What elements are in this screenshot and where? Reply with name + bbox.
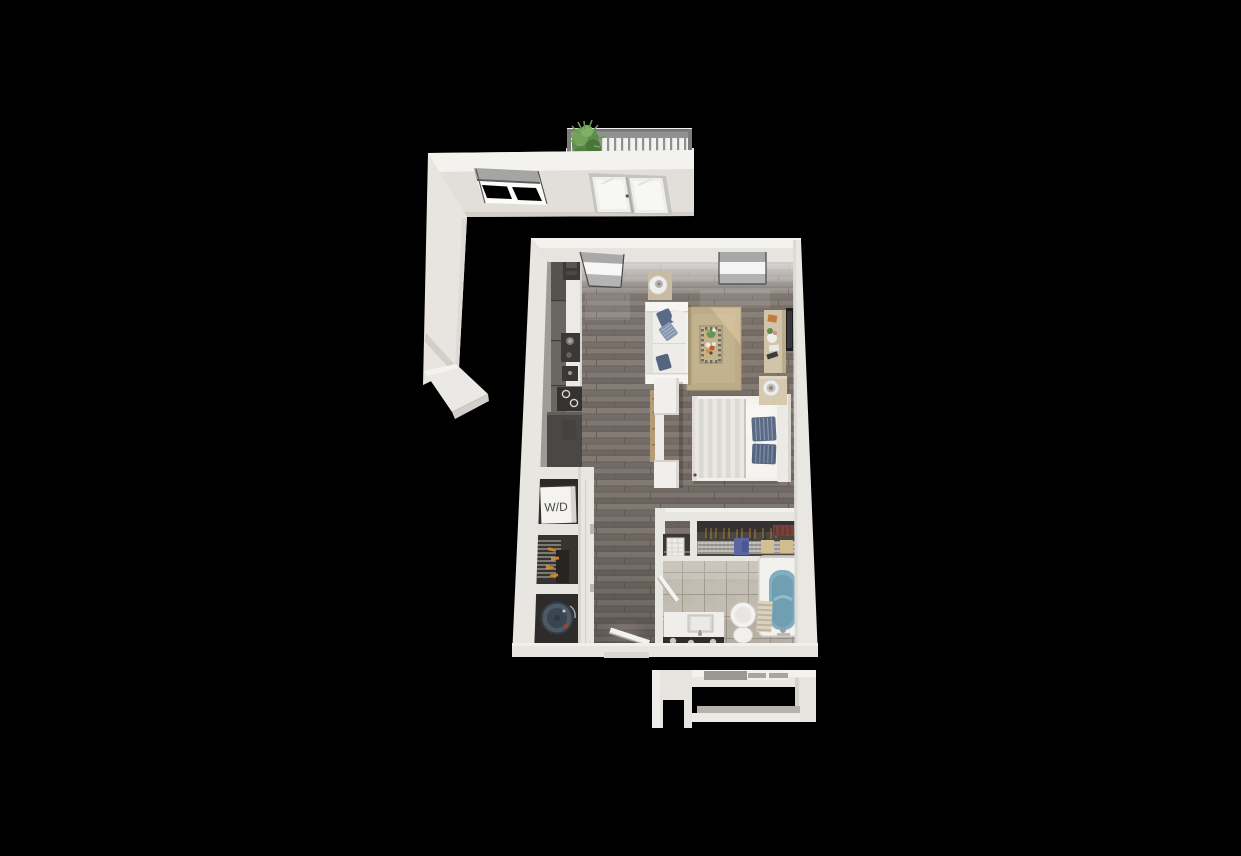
svg-text:W/D: W/D [544,500,568,515]
